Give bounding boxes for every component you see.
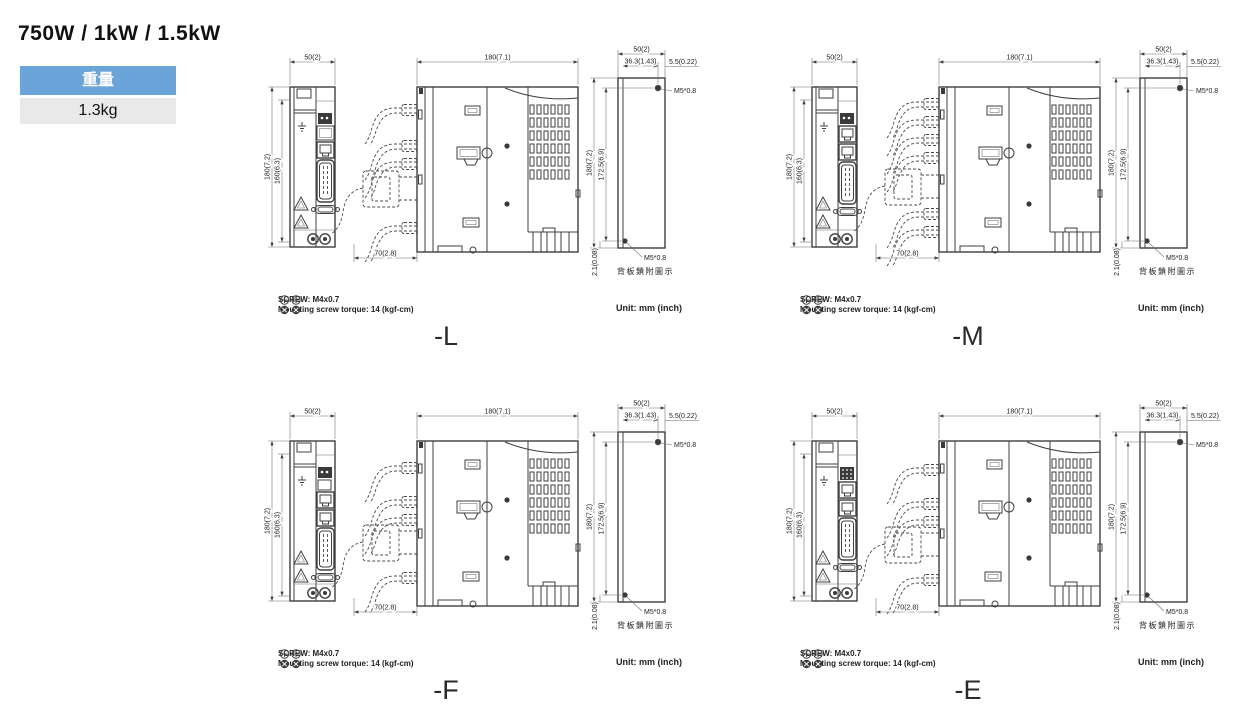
front-view: 50(2)180(7.2)160(6.3) — [265, 409, 340, 602]
weight-table: 重量 1.3kg — [20, 66, 176, 124]
dim-back-hole-edge: 5.5(0.22) — [669, 59, 697, 66]
dim-side-width: 180(7.1) — [1006, 55, 1032, 62]
dimension-drawing-f: 50(2)180(7.2)160(6.3)180(7.1)70(2.8)50(2… — [260, 394, 750, 646]
dim-back-hole-span: 36.3(1.43) — [1147, 59, 1179, 66]
dim-front-width: 50(2) — [826, 409, 842, 416]
label-screw-spec-bottom: M5*0.8 — [1166, 609, 1188, 616]
dim-back-hole-span: 36.3(1.43) — [625, 413, 657, 420]
dim-back-bottom-gap: 2.1(0.08) — [1114, 602, 1121, 630]
dim-back-hole-edge: 5.5(0.22) — [1191, 413, 1219, 420]
label-screw-spec-bottom: M5*0.8 — [1166, 255, 1188, 262]
front-view: 50(2)180(7.2)160(6.3) — [265, 55, 340, 248]
back-view: 50(2)36.3(1.43)5.5(0.22)180(7.2)172.5(6.… — [587, 47, 700, 277]
dim-back-hole-span: 36.3(1.43) — [1147, 413, 1179, 420]
mounting-notes: SCREW: M4x0.7Mounting screw torque: 14 (… — [800, 295, 936, 315]
dim-back-hole-pitch: 172.5(6.9) — [1121, 149, 1128, 181]
dim-side-width: 180(7.1) — [1006, 409, 1032, 416]
dim-cable-space: 70(2.8) — [896, 605, 918, 612]
mounting-notes: SCREW: M4x0.7Mounting screw torque: 14 (… — [278, 295, 414, 315]
dim-back-bottom-gap: 2.1(0.08) — [1114, 248, 1121, 276]
weight-table-header: 重量 — [20, 66, 176, 95]
variant-label-e: -E — [782, 675, 1154, 706]
page-title: 750W / 1kW / 1.5kW — [18, 22, 221, 46]
label-screw-spec-top: M5*0.8 — [674, 88, 696, 95]
label-screw-spec-bottom: M5*0.8 — [644, 255, 666, 262]
weight-table-value: 1.3kg — [20, 98, 176, 124]
label-screw-spec-bottom: M5*0.8 — [644, 609, 666, 616]
dim-back-width: 50(2) — [1155, 401, 1171, 408]
front-view: 50(2)180(7.2)160(6.3) — [787, 409, 862, 602]
dimension-drawing-m: 50(2)180(7.2)160(6.3)180(7.1)70(2.8)50(2… — [782, 40, 1242, 292]
screw-head-icons — [800, 649, 827, 669]
side-view: 180(7.1)70(2.8) — [354, 409, 580, 617]
back-view: 50(2)36.3(1.43)5.5(0.22)180(7.2)172.5(6.… — [1109, 401, 1222, 631]
unit-note: Unit: mm (inch) — [1138, 303, 1204, 313]
dim-back-hole-edge: 5.5(0.22) — [1191, 59, 1219, 66]
dim-front-height-inner: 160(6.3) — [275, 158, 282, 184]
variant-label-f: -F — [260, 675, 632, 706]
drawing-quadrant-f: 50(2)180(7.2)160(6.3)180(7.1)70(2.8)50(2… — [260, 394, 750, 726]
unit-note: Unit: mm (inch) — [616, 657, 682, 667]
dim-back-hole-pitch: 172.5(6.9) — [1121, 503, 1128, 535]
dim-cable-space: 70(2.8) — [896, 251, 918, 258]
drawing-quadrant-e: 50(2)180(7.2)160(6.3)180(7.1)70(2.8)50(2… — [782, 394, 1242, 726]
back-caption: 背板鎖附圖示 — [617, 620, 674, 630]
dim-back-height: 180(7.2) — [1109, 150, 1116, 176]
dim-cable-space: 70(2.8) — [374, 605, 396, 612]
back-caption: 背板鎖附圖示 — [1139, 266, 1196, 276]
label-screw-spec-top: M5*0.8 — [1196, 88, 1218, 95]
dim-back-bottom-gap: 2.1(0.08) — [592, 248, 599, 276]
dim-front-height-outer: 180(7.2) — [265, 508, 272, 534]
dim-back-hole-edge: 5.5(0.22) — [669, 413, 697, 420]
drawing-quadrant-m: 50(2)180(7.2)160(6.3)180(7.1)70(2.8)50(2… — [782, 40, 1242, 372]
screw-head-icons — [278, 649, 305, 669]
cable-bundles — [331, 463, 417, 614]
dim-front-height-outer: 180(7.2) — [787, 508, 794, 534]
back-caption: 背板鎖附圖示 — [617, 266, 674, 276]
dim-back-hole-span: 36.3(1.43) — [625, 59, 657, 66]
dim-back-height: 180(7.2) — [587, 150, 594, 176]
dimension-drawing-l: 50(2)180(7.2)160(6.3)180(7.1)70(2.8)50(2… — [260, 40, 750, 292]
dim-front-height-inner: 160(6.3) — [275, 512, 282, 538]
dim-back-bottom-gap: 2.1(0.08) — [592, 602, 599, 630]
dim-front-width: 50(2) — [826, 55, 842, 62]
dim-back-width: 50(2) — [633, 401, 649, 408]
dim-front-height-inner: 160(6.3) — [797, 512, 804, 538]
front-view: 50(2)180(7.2)160(6.3) — [787, 55, 862, 248]
unit-note: Unit: mm (inch) — [1138, 657, 1204, 667]
dim-front-width: 50(2) — [304, 409, 320, 416]
dim-back-height: 180(7.2) — [1109, 504, 1116, 530]
dim-back-hole-pitch: 172.5(6.9) — [599, 503, 606, 535]
screw-head-icons — [800, 295, 827, 315]
dim-front-height-outer: 180(7.2) — [787, 154, 794, 180]
side-view: 180(7.1)70(2.8) — [876, 409, 1102, 617]
dim-back-width: 50(2) — [1155, 47, 1171, 54]
dim-side-width: 180(7.1) — [484, 55, 510, 62]
label-screw-spec-top: M5*0.8 — [674, 442, 696, 449]
mounting-notes: SCREW: M4x0.7Mounting screw torque: 14 (… — [278, 649, 414, 669]
side-view: 180(7.1)70(2.8) — [354, 55, 580, 263]
drawing-quadrant-l: 50(2)180(7.2)160(6.3)180(7.1)70(2.8)50(2… — [260, 40, 750, 372]
dim-back-height: 180(7.2) — [587, 504, 594, 530]
dim-cable-space: 70(2.8) — [374, 251, 396, 258]
back-view: 50(2)36.3(1.43)5.5(0.22)180(7.2)172.5(6.… — [587, 401, 700, 631]
back-caption: 背板鎖附圖示 — [1139, 620, 1196, 630]
dimension-drawing-e: 50(2)180(7.2)160(6.3)180(7.1)70(2.8)50(2… — [782, 394, 1242, 646]
dim-back-hole-pitch: 172.5(6.9) — [599, 149, 606, 181]
dim-front-width: 50(2) — [304, 55, 320, 62]
side-view: 180(7.1)70(2.8) — [876, 55, 1102, 263]
screw-head-icons — [278, 295, 305, 315]
cable-bundles — [853, 99, 939, 268]
dim-back-width: 50(2) — [633, 47, 649, 54]
dim-front-height-outer: 180(7.2) — [265, 154, 272, 180]
unit-note: Unit: mm (inch) — [616, 303, 682, 313]
dim-side-width: 180(7.1) — [484, 409, 510, 416]
variant-label-m: -M — [782, 321, 1154, 352]
label-screw-spec-top: M5*0.8 — [1196, 442, 1218, 449]
cable-bundles — [853, 465, 939, 616]
cable-bundles — [331, 105, 417, 264]
variant-label-l: -L — [260, 321, 632, 352]
dim-front-height-inner: 160(6.3) — [797, 158, 804, 184]
mounting-notes: SCREW: M4x0.7Mounting screw torque: 14 (… — [800, 649, 936, 669]
back-view: 50(2)36.3(1.43)5.5(0.22)180(7.2)172.5(6.… — [1109, 47, 1222, 277]
